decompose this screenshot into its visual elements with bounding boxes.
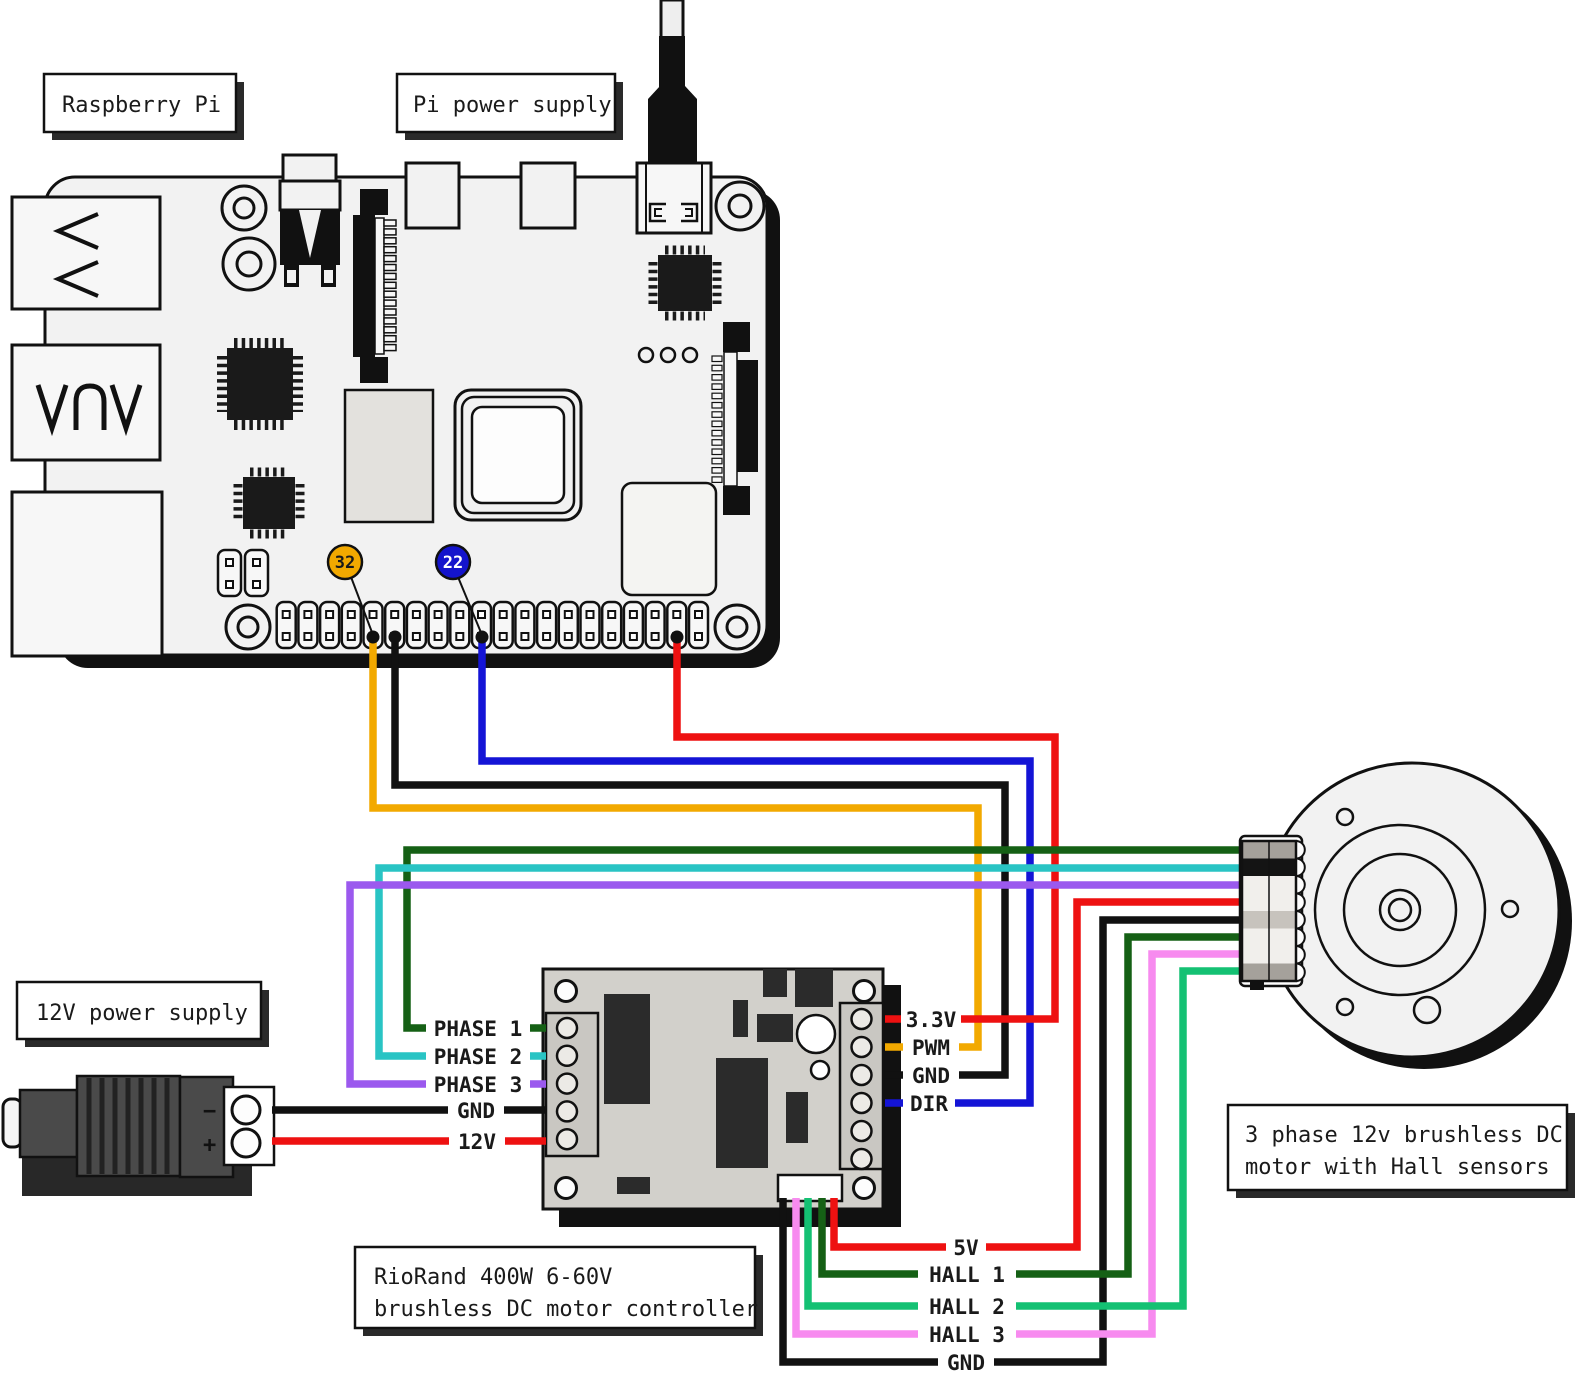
3v3-label: 3.3V	[906, 1008, 957, 1032]
negative-screw-terminal	[232, 1096, 260, 1124]
gpio-pin-top	[543, 611, 550, 618]
gpio-pin-bottom	[565, 633, 572, 640]
gpio-pin-top	[304, 611, 311, 618]
dsi-tooth	[712, 421, 722, 427]
input-terminal	[557, 1101, 577, 1121]
logic-terminal	[852, 1009, 872, 1029]
gpio-pin-bottom	[695, 633, 702, 640]
gpio-pin-bottom	[413, 633, 420, 640]
gnd-logic-label: GND	[912, 1064, 950, 1088]
csi-tooth	[384, 247, 396, 253]
motor-label-line1: 3 phase 12v brushless DC	[1245, 1123, 1563, 1148]
gpio-pin-bottom	[543, 633, 550, 640]
dsi-tooth	[712, 458, 722, 464]
hdmi-port-1	[521, 163, 575, 228]
dsi-tooth	[712, 393, 722, 399]
gnd-input-label: GND	[457, 1099, 495, 1123]
wiring-diagram: Raspberry Pi Pi power supply 12V power s…	[0, 0, 1580, 1382]
gpio-pin-module	[277, 602, 296, 648]
gpio-pin-top	[283, 611, 290, 618]
gpio-pin-bottom	[348, 633, 355, 640]
gpio-pin-bottom	[608, 633, 615, 640]
dir-label: DIR	[910, 1092, 948, 1116]
csi-tooth	[384, 282, 396, 288]
dsi-tooth	[712, 477, 722, 483]
gpio-pin-top	[370, 611, 377, 618]
gpio-pin-bottom	[587, 633, 594, 640]
barrel-neck	[20, 1090, 77, 1157]
motor-label-line2: motor with Hall sensors	[1245, 1155, 1550, 1180]
csi-tooth	[384, 300, 396, 306]
dsi-tooth	[712, 375, 722, 381]
controller-label-line1: RioRand 400W 6-60V	[374, 1265, 612, 1290]
gpio-pin-bottom	[283, 633, 290, 640]
logic-terminal	[852, 1149, 872, 1169]
gpio-pin-top	[521, 611, 528, 618]
usb-c-port	[637, 163, 711, 233]
dsi-tooth	[712, 365, 722, 371]
motor-controller-board	[543, 969, 901, 1227]
gpio-pin-top	[652, 611, 659, 618]
led	[811, 1061, 829, 1079]
gpio-pin-module	[602, 602, 621, 648]
gpio-pin-top	[391, 611, 398, 618]
gpio-pin-32-number: 32	[335, 553, 355, 573]
phase1-label: PHASE 1	[434, 1017, 523, 1041]
dsi-tooth	[712, 356, 722, 362]
dsi-tooth	[712, 468, 722, 474]
gpio-pin-module	[407, 602, 426, 648]
hdmi-port-0	[406, 163, 459, 228]
gpio-pin-bottom	[304, 633, 311, 640]
hall2-label: HALL 2	[929, 1295, 1005, 1319]
12v-power-supply: − +	[3, 1076, 274, 1196]
dsi-tooth	[712, 412, 722, 418]
12v-power-supply-label: 12V power supply	[36, 1001, 248, 1026]
positive-screw-terminal	[232, 1129, 260, 1157]
plus-sign: +	[203, 1133, 216, 1158]
input-terminal	[557, 1074, 577, 1094]
raspberry-pi-label: Raspberry Pi	[62, 93, 221, 118]
gpio-pin-module	[559, 602, 578, 648]
potentiometer	[797, 1015, 835, 1053]
csi-tooth	[384, 336, 396, 342]
csi-tooth	[384, 291, 396, 297]
logic-terminal	[852, 1121, 872, 1141]
gpio-pin-top	[413, 611, 420, 618]
gpio-pin-bottom	[652, 633, 659, 640]
sd-slot	[622, 483, 716, 595]
gpio-pin-top	[478, 611, 485, 618]
gpio-pin-top	[348, 611, 355, 618]
connector-tab	[1250, 981, 1264, 990]
gpio-pin-top	[435, 611, 442, 618]
gpio-pin-module	[581, 602, 600, 648]
gpio-pin-module	[450, 602, 469, 648]
gpio-pin-module	[624, 602, 643, 648]
gpio-pin-top	[326, 611, 333, 618]
pi-power-plug	[637, 0, 711, 233]
chip-c	[653, 250, 717, 316]
dsi-tooth	[712, 430, 722, 436]
csi-tooth	[384, 327, 396, 333]
hall-connector	[778, 1175, 842, 1201]
logic-terminal	[852, 1093, 872, 1113]
power-cable	[661, 0, 683, 38]
gpio-pin-module	[494, 602, 513, 648]
gpio-pin-module	[537, 602, 556, 648]
csi-tooth	[384, 256, 396, 262]
gpio-pin-top	[673, 611, 680, 618]
logic-terminal	[852, 1037, 872, 1057]
gpio-pin-module	[515, 602, 534, 648]
gpio-pin-top	[587, 611, 594, 618]
gpio-pin-bottom	[435, 633, 442, 640]
input-terminal	[557, 1129, 577, 1149]
controller-label-line2: brushless DC motor controller	[374, 1297, 758, 1322]
gpio-pin-top	[608, 611, 615, 618]
gpio-pin-module	[429, 602, 448, 648]
csi-tooth	[384, 318, 396, 324]
ethernet-port	[12, 492, 162, 656]
csi-tooth	[384, 238, 396, 244]
dsi-tooth	[712, 449, 722, 455]
wire-3v3	[677, 637, 1055, 1019]
gpio-pin-bottom	[521, 633, 528, 640]
csi-tooth	[384, 309, 396, 315]
bldc-motor	[1240, 763, 1572, 1069]
test-pads	[639, 348, 697, 362]
gpio-pin-module	[298, 602, 317, 648]
gpio-pin-22-number: 22	[443, 553, 463, 573]
hall1-label: HALL 1	[929, 1263, 1005, 1287]
phase2-label: PHASE 2	[434, 1045, 523, 1069]
csi-tooth	[384, 229, 396, 235]
usb-port-top	[12, 197, 160, 309]
gpio-pin-bottom	[500, 633, 507, 640]
gpio-pin-module	[646, 602, 665, 648]
gpio-pin-bottom	[456, 633, 463, 640]
input-terminal	[557, 1046, 577, 1066]
gpio-pin-top	[565, 611, 572, 618]
gpio-pin-top	[695, 611, 702, 618]
minus-sign: −	[203, 1099, 216, 1124]
hall3-label: HALL 3	[929, 1323, 1005, 1347]
gpio-pin-module	[320, 602, 339, 648]
pwm-label: PWM	[912, 1036, 950, 1060]
gpio-pin-top	[630, 611, 637, 618]
gpio-pin-bottom	[630, 633, 637, 640]
logic-terminal	[852, 1065, 872, 1085]
dsi-tooth	[712, 440, 722, 446]
phase3-label: PHASE 3	[434, 1073, 523, 1097]
gpio-pin-module	[689, 602, 708, 648]
pi-power-supply-label: Pi power supply	[413, 93, 612, 118]
csi-tooth	[384, 345, 396, 351]
motor-wire-connector	[1240, 836, 1305, 990]
gpio-pin-top	[456, 611, 463, 618]
gpio-pin-bottom	[326, 633, 333, 640]
12v-label: 12V	[458, 1130, 496, 1154]
chip-b	[238, 472, 300, 534]
csi-tooth	[384, 273, 396, 279]
dsi-tooth	[712, 403, 722, 409]
gnd-hall-label: GND	[947, 1351, 985, 1375]
csi-tooth	[384, 265, 396, 271]
csi-tooth	[384, 220, 396, 226]
gpio-pin-module	[342, 602, 361, 648]
input-terminal	[557, 1018, 577, 1038]
chip-a	[222, 343, 298, 425]
5v-label: 5V	[953, 1236, 979, 1260]
usb-port-bottom	[12, 345, 160, 460]
ram-chip	[345, 390, 433, 522]
strain-relief-ribs	[89, 1078, 167, 1174]
dsi-tooth	[712, 384, 722, 390]
cpu	[455, 390, 581, 520]
gpio-pin-top	[500, 611, 507, 618]
